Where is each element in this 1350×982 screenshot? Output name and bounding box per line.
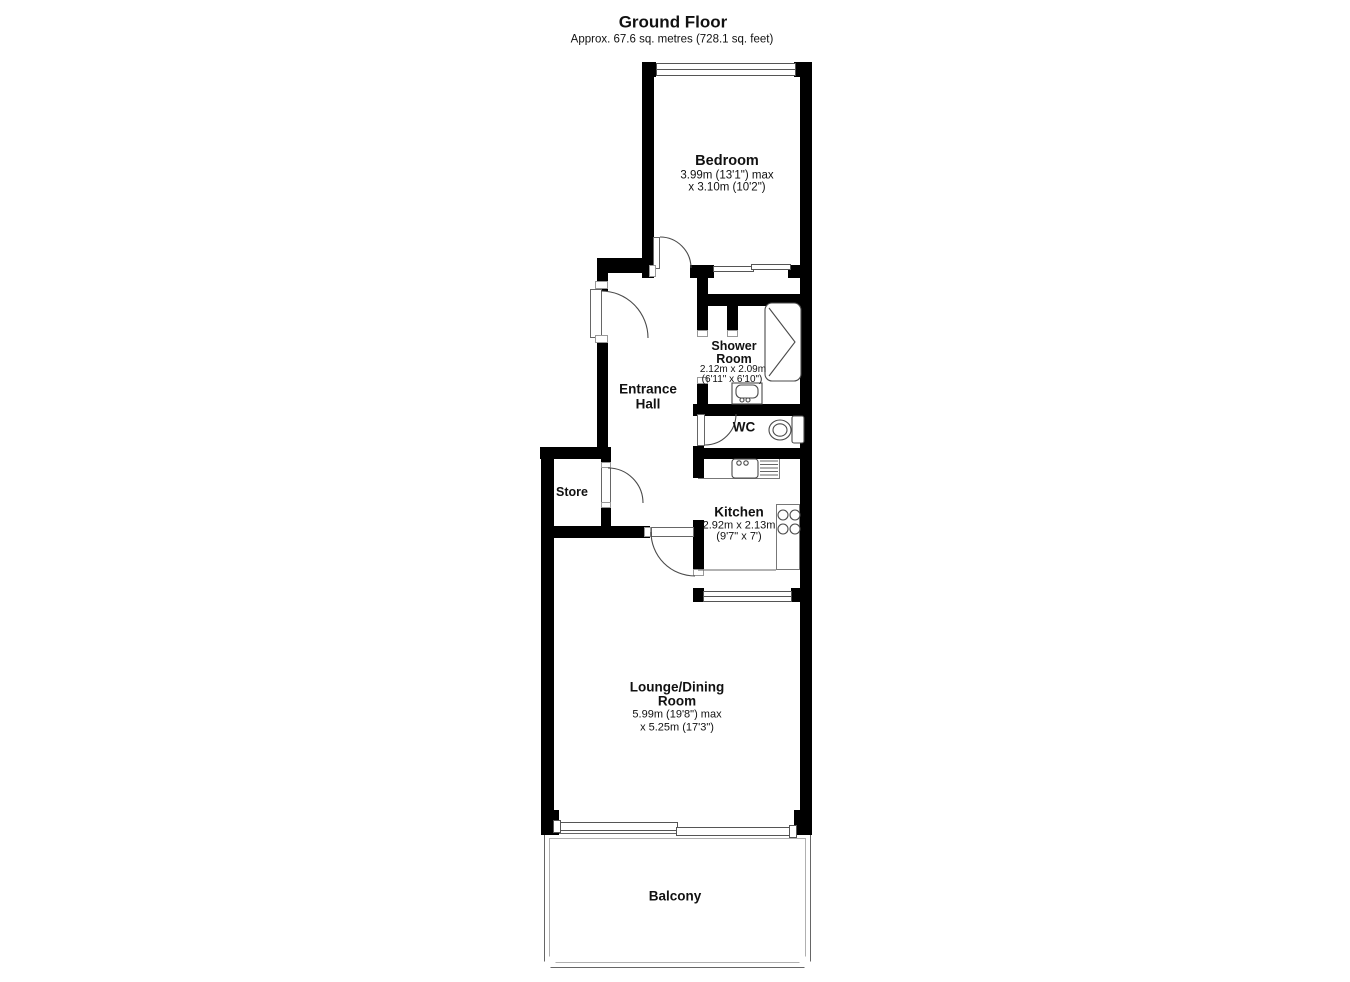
wc-top-wall bbox=[693, 404, 812, 416]
toilet-bowl bbox=[773, 424, 787, 436]
kitchen-counter-hob-run bbox=[776, 504, 800, 570]
patio-sliding-door-panel-left bbox=[560, 822, 678, 831]
entrance-door-swing bbox=[601, 291, 648, 338]
shower-room-top-wall bbox=[697, 294, 812, 306]
wc-door-leaf bbox=[697, 414, 705, 446]
page-title: Ground Floor bbox=[619, 14, 728, 31]
shower-enclosure-door-lines bbox=[769, 308, 795, 376]
store-door-leaf bbox=[601, 467, 611, 504]
bedroom-window bbox=[656, 63, 796, 76]
store-door-swing bbox=[608, 468, 643, 503]
door-frame-tick bbox=[601, 502, 611, 508]
washbasin-icon bbox=[732, 383, 762, 404]
patio-fixed-pane-left bbox=[553, 820, 561, 833]
kitchen-dim-2: (9'7" x 7') bbox=[716, 532, 761, 543]
shower-room-label-1: Shower bbox=[711, 340, 756, 353]
door-frame-tick bbox=[595, 281, 608, 289]
lounge-door-swing bbox=[651, 532, 695, 576]
wc-bottom-wall bbox=[693, 448, 812, 459]
wc-door-swing bbox=[705, 414, 736, 445]
bedroom-dim-1: 3.99m (13'1") max bbox=[680, 170, 773, 182]
left-outer-wall bbox=[541, 447, 554, 817]
hall-left-wall-lower bbox=[597, 336, 608, 449]
kitchen-counter-sink-run bbox=[698, 458, 780, 479]
door-frame-tick bbox=[644, 527, 651, 537]
wc-label: WC bbox=[733, 420, 756, 434]
patio-fixed-pane-right bbox=[789, 825, 797, 838]
entrance-hall-label-1: Entrance bbox=[619, 382, 677, 396]
page-subtitle: Approx. 67.6 sq. metres (728.1 sq. feet) bbox=[571, 34, 774, 46]
bedroom-door-swing bbox=[660, 237, 691, 268]
door-frame-tick bbox=[727, 330, 738, 337]
entrance-hall-label-2: Hall bbox=[636, 397, 661, 411]
door-frame-tick bbox=[601, 462, 611, 468]
lounge-dim-1: 5.99m (19'8") max bbox=[632, 710, 721, 721]
kitchen-internal-window bbox=[703, 591, 792, 602]
lounge-label-1: Lounge/Dining bbox=[630, 680, 724, 694]
balcony-label: Balcony bbox=[649, 889, 702, 903]
shower-enclosure-icon bbox=[765, 303, 801, 381]
wardrobe-sliding-door-panel bbox=[713, 266, 754, 272]
kitchen-left-wall-upper bbox=[693, 448, 704, 478]
bedroom-dim-2: x 3.10m (10'2") bbox=[688, 182, 765, 194]
door-frame-tick bbox=[595, 335, 608, 343]
door-frame-tick bbox=[649, 265, 656, 277]
lounge-dim-2: x 5.25m (17'3") bbox=[640, 723, 714, 734]
store-label: Store bbox=[556, 486, 588, 499]
store-right-wall-lower bbox=[601, 503, 611, 538]
store-bottom-wall bbox=[541, 526, 650, 538]
toilet-icon bbox=[769, 420, 791, 440]
kitchen-label: Kitchen bbox=[714, 505, 764, 519]
kitchen-window-right-stub bbox=[791, 588, 812, 602]
washbasin-bowl bbox=[736, 385, 758, 398]
washbasin-tap bbox=[740, 398, 744, 402]
bedroom-label: Bedroom bbox=[695, 154, 759, 169]
wardrobe-sliding-door-panel bbox=[751, 264, 791, 270]
floorplan-ground-floor: Ground Floor Approx. 67.6 sq. metres (72… bbox=[0, 0, 1350, 982]
lounge-door-leaf bbox=[651, 527, 694, 537]
patio-sliding-door-panel-right bbox=[676, 827, 791, 836]
door-frame-tick bbox=[693, 569, 704, 576]
entrance-door-leaf bbox=[590, 289, 602, 338]
lounge-label-2: Room bbox=[658, 694, 696, 708]
shower-room-dim-2: (6'11" x 6'10") bbox=[702, 375, 763, 385]
washbasin-tap bbox=[746, 398, 750, 402]
door-frame-tick bbox=[697, 330, 708, 337]
